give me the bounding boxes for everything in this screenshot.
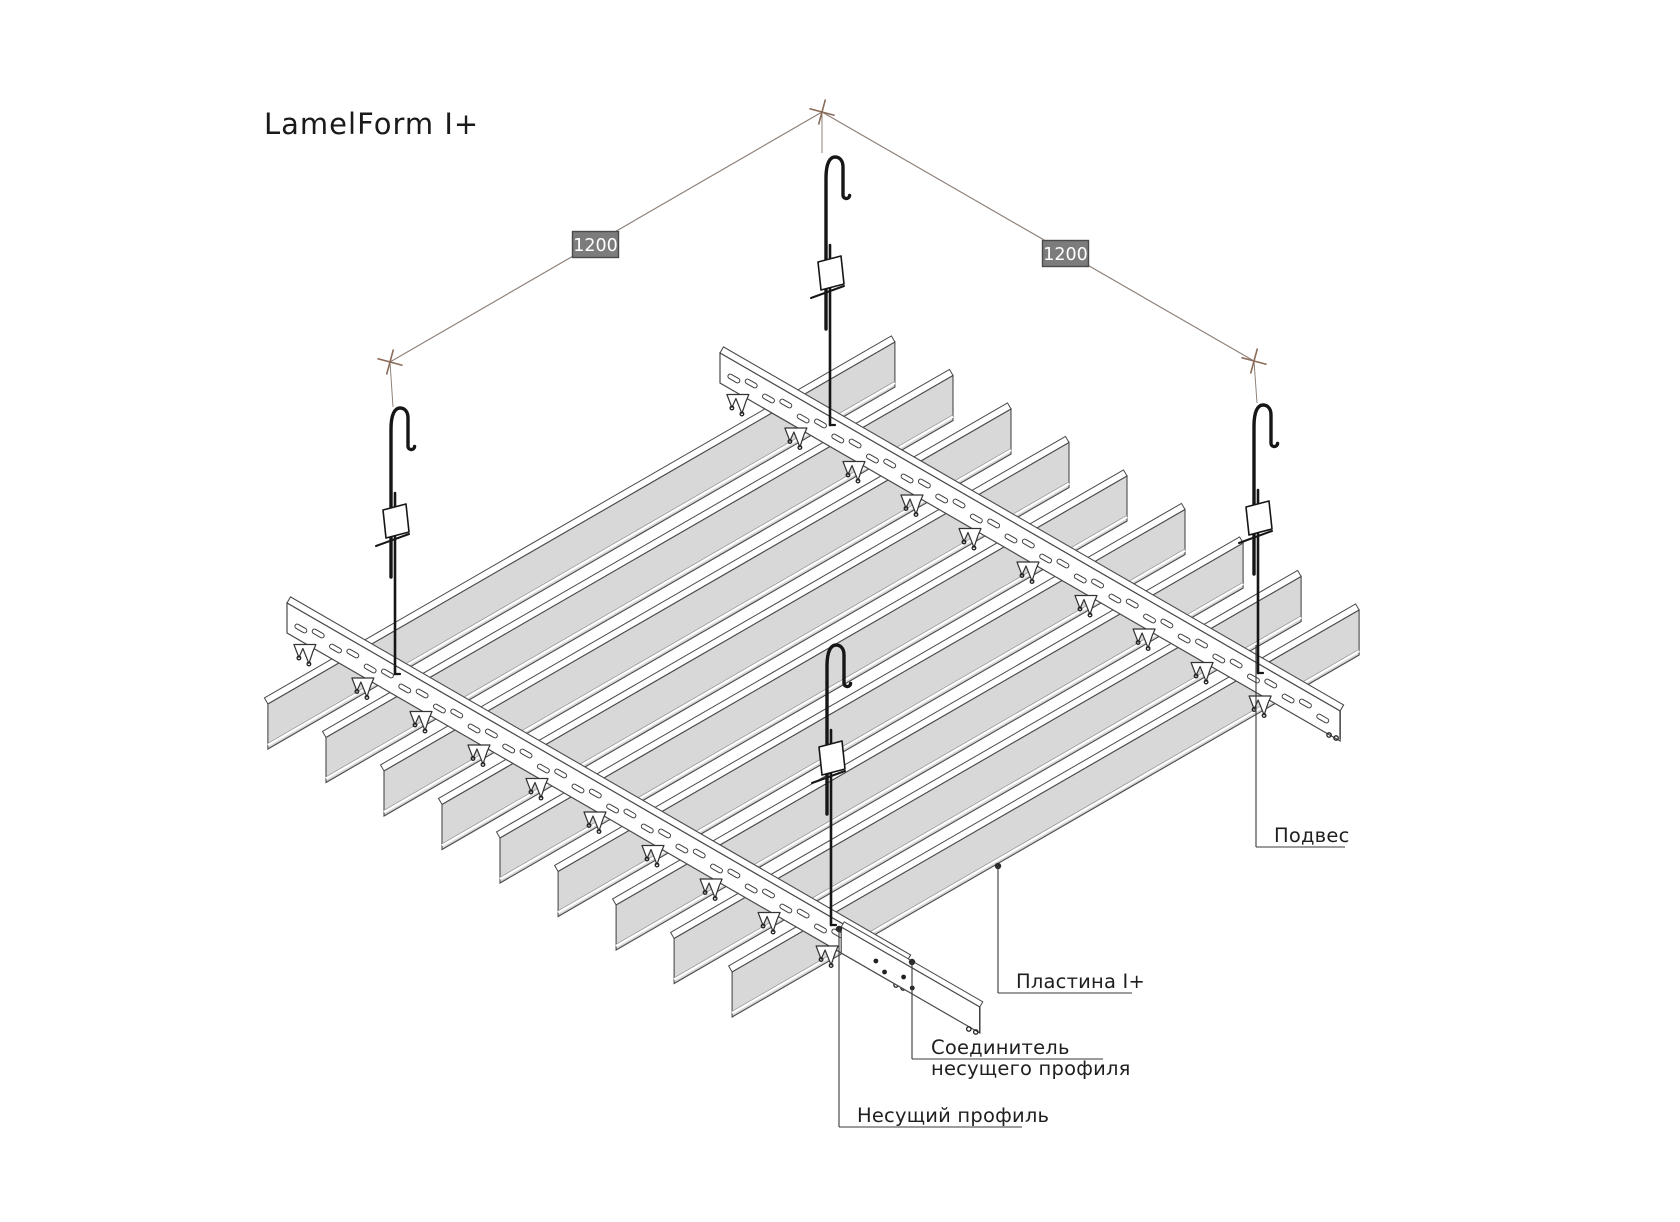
rail-tooth [727,395,749,416]
drawing-title: LamelForm I+ [264,107,479,141]
hanger-clip [818,256,844,290]
label-plate: Пластина I+ [1016,970,1145,993]
dimension-lines [377,99,1266,407]
dimension-left-value: 1200 [573,236,618,256]
diagram-canvas: LamelForm I+ 1200 1200 Подвес Пластина I… [0,0,1680,1222]
label-connector-line1: Соединитель [931,1036,1070,1059]
label-connector-line2: несущего профиля [931,1057,1131,1080]
hanger-clip [819,741,845,775]
drawing-stage: LamelForm I+ 1200 1200 Подвес Пластина I… [0,0,1680,1222]
hanger-clip [383,504,409,538]
connector-hole [901,975,906,980]
connector-hole [882,970,887,975]
rail-tooth [294,645,316,666]
label-carrier-profile: Несущий профиль [857,1104,1049,1127]
connector-hole [873,959,878,964]
hanger-clip [1246,501,1272,535]
label-hanger: Подвес [1274,824,1350,847]
diagram-geometry [264,99,1359,1127]
dimension-right-value: 1200 [1043,245,1088,265]
